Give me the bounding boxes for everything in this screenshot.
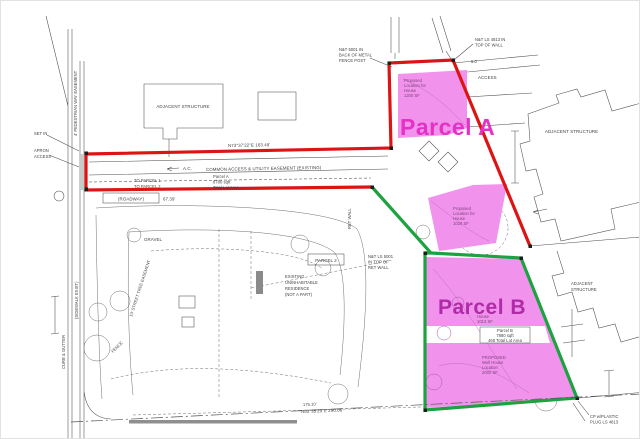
to-parcel-2: TO PARCEL 2 [134, 184, 161, 189]
bearing-bottom: N53°35'29"E 290.06' [301, 408, 344, 414]
shed [182, 317, 194, 327]
centerline [71, 394, 640, 422]
shed [179, 296, 195, 308]
parcel-a-area-note: Parcel A [213, 174, 229, 179]
wall-strip [256, 271, 263, 294]
scale-bar [129, 420, 297, 424]
sidewalk-label: (SIDEWALK EXIST) [74, 281, 79, 319]
residence-note: EXISTING [285, 274, 305, 279]
pedestrian-easement-label: 4' PEDESTRIAN WAY EASEMENT [73, 70, 78, 136]
parcel-a-house-note: 1200 SF [404, 93, 420, 98]
tree [291, 235, 309, 253]
to-parcel-1: TO PARCEL 1 [134, 178, 161, 183]
wall-nail-note: TOP OF WALL [475, 43, 503, 48]
fence-post-nail-note: BACK OF METAL [339, 53, 373, 58]
ret-wall-nail-note: N&T LS 5001 [368, 254, 394, 259]
street-lines [46, 16, 111, 439]
tree [328, 384, 348, 404]
adjacent-structure-right [520, 89, 640, 241]
adjacent-structure-top-left [144, 84, 223, 157]
residence-note: RESIDENCE [285, 286, 310, 291]
mid-house-fill [428, 184, 507, 251]
corridor-linework [89, 156, 388, 265]
adjacent-structure-label: STRUCTURE [571, 287, 597, 292]
site-plan-svg: ADJACENT STRUCTURE ADJACENT STRUCTURE AD… [1, 1, 640, 439]
well-house-note: 2000 SF [482, 370, 498, 375]
access-label: ACCESS [478, 75, 497, 80]
ret-wall-nail-note: RET WALL [368, 265, 389, 270]
site-plan-drawing: ADJACENT STRUCTURE ADJACENT STRUCTURE AD… [0, 0, 640, 439]
fence-post-nail-note: FENCE POST [339, 58, 366, 63]
access-dim: 5.0 [471, 59, 478, 64]
curb-gutter-label: CURB & GUTTER [61, 335, 66, 369]
set-in-label: SET IN [34, 131, 47, 136]
ret-wall-label: RET WALL [347, 208, 352, 229]
wall-nail-note: N&T LS 4813 IN [475, 37, 505, 42]
tree [84, 335, 110, 361]
parcel-a-area-note: Total Lot Area [213, 185, 239, 190]
adjacent-structure-lower-right [552, 251, 640, 342]
contour-lines [111, 249, 393, 383]
apron-label: APRON [34, 148, 49, 153]
adjacent-structure-label: ADJACENT STRUCTURE [545, 129, 598, 134]
gravel-label: GRAVEL [144, 237, 163, 242]
apron-label: ACCESS [34, 154, 51, 159]
bearing-top: N73°37'22"E 163.49' [228, 142, 270, 148]
cp-plug-note: PLUG LS 4813 [590, 420, 619, 425]
tree [54, 191, 64, 201]
parcel2-label: PARCEL 2 [315, 258, 337, 263]
adjacent-structure-label: ADJACENT [571, 281, 593, 286]
tree [110, 291, 130, 311]
ac-label: A.C. [183, 166, 192, 171]
street-linework [46, 16, 111, 439]
small-structure [258, 92, 296, 120]
residence-note: (NOT A PART) [285, 292, 313, 297]
ret-wall-nail-note: IN TOP OF [368, 260, 389, 265]
roadway-dim: 67.39' [163, 197, 175, 202]
fence-post-nail-note: N&T 5001 IN [339, 47, 363, 52]
parcel-a-title: Parcel A [400, 114, 495, 140]
street-tree-easement-label: 10' STREET TREE EASEMENT [128, 259, 151, 317]
roadway-label: (ROADWAY) [118, 197, 144, 202]
parcel-b-box-note: 468 Total Lot Area [488, 338, 522, 343]
mid-house-note: 1029 SF [453, 221, 469, 226]
bottom-dim: 175.10' [303, 402, 317, 407]
parcel-b-house-note: 1013 SF [477, 319, 493, 324]
fence-label: FENCE [110, 340, 124, 354]
adjacent-structure-label: ADJACENT STRUCTURE [156, 104, 209, 109]
residence-note: UNINHABITABLE [285, 280, 318, 285]
parcel-a-area-note: 8780 sqft [213, 180, 231, 185]
survey-diamonds [419, 141, 458, 172]
cp-plug-note: CP w/PLASTIC [590, 414, 619, 419]
